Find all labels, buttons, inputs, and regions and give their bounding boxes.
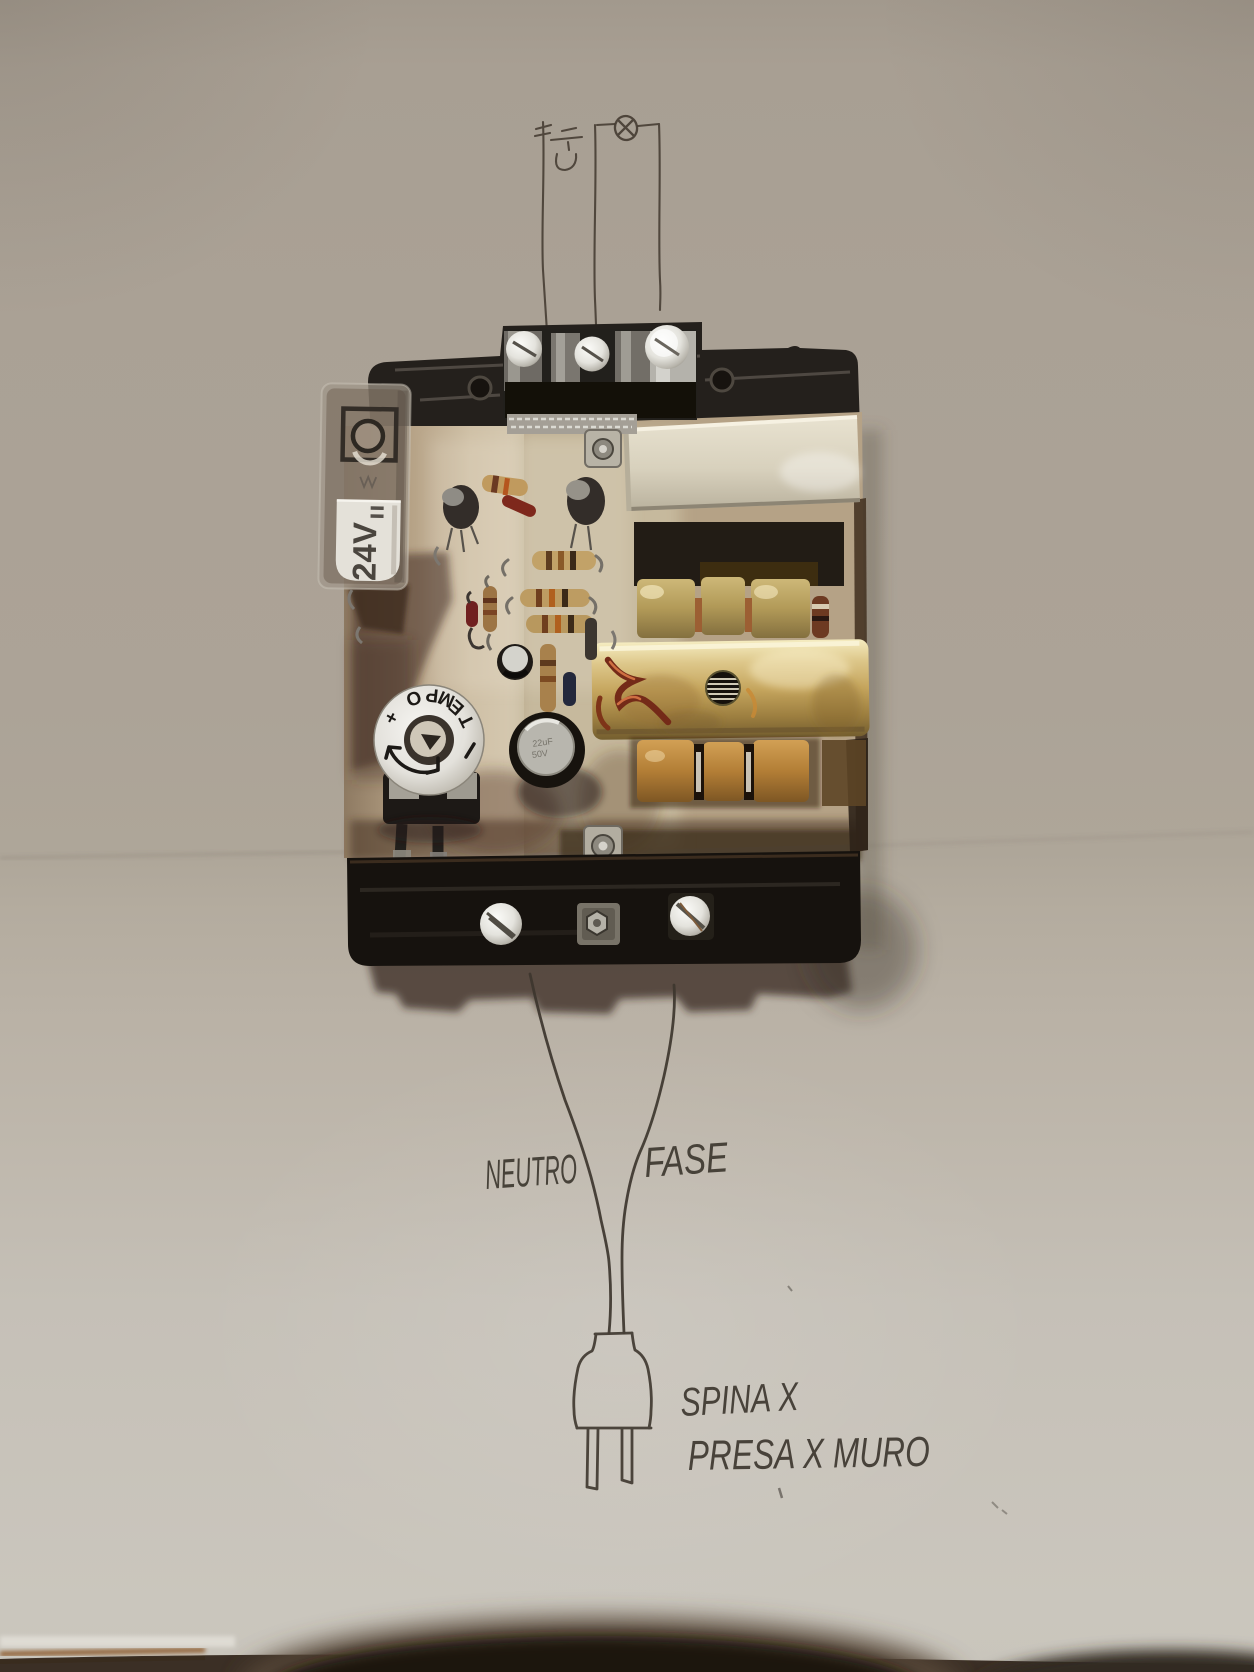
svg-text:NEUTRO: NEUTRO — [483, 1146, 578, 1198]
svg-text:FASE: FASE — [642, 1133, 730, 1186]
svg-text:PRESA X MURO: PRESA X MURO — [687, 1428, 930, 1479]
svg-text:24V: 24V — [345, 522, 383, 581]
svg-text:P: P — [424, 683, 439, 705]
svg-text:SPINA X: SPINA X — [679, 1375, 800, 1425]
